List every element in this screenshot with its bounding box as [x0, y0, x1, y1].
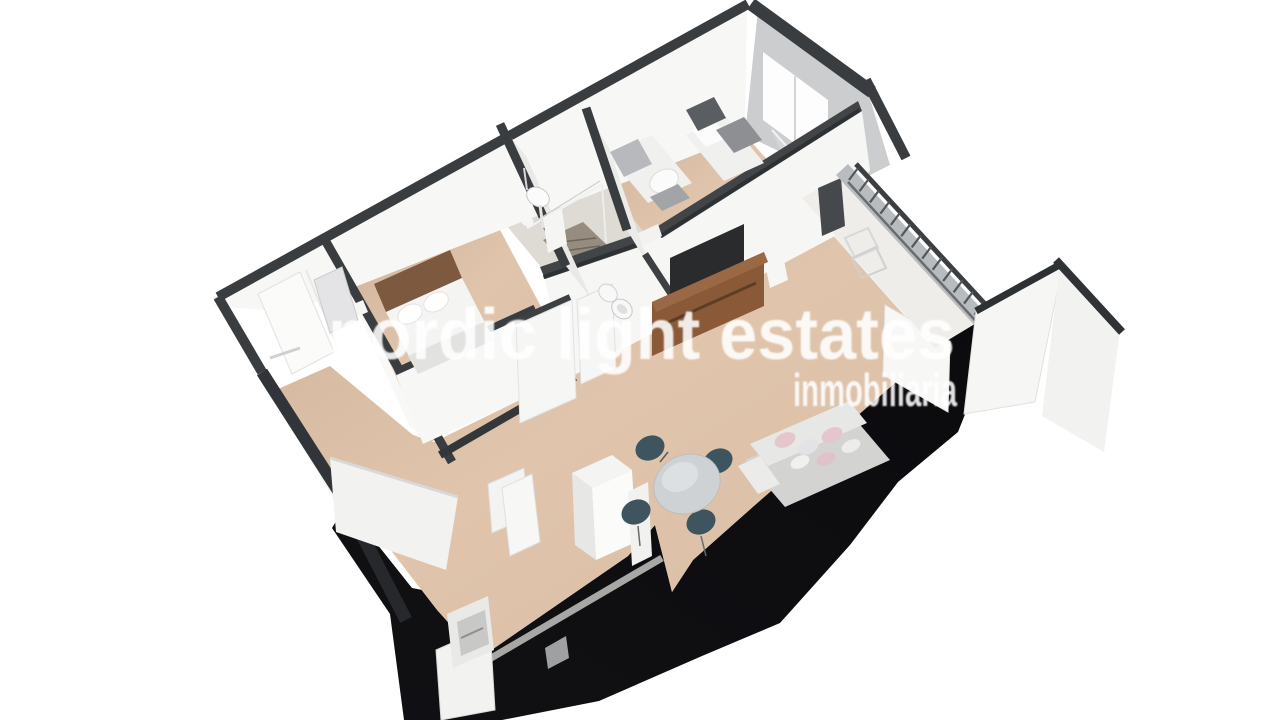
- svg-text:inmobiliaria: inmobiliaria: [793, 364, 957, 416]
- svg-text:nordic light estates: nordic light estates: [328, 295, 955, 375]
